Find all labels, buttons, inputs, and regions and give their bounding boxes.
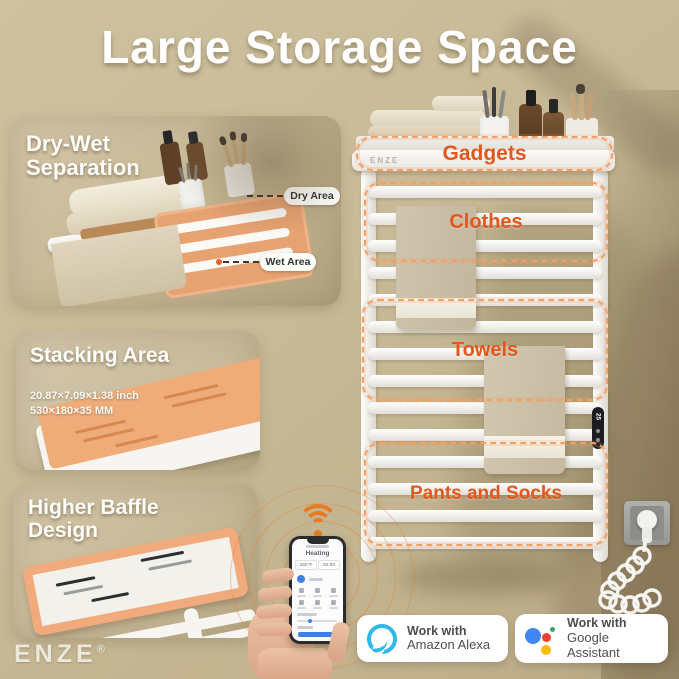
toothbrush [186,163,190,179]
app-slider-label-placeholder [297,613,317,616]
dry-area-label: Dry Area [284,187,340,205]
app-row-label-placeholder [297,626,313,629]
makeup-brush [569,92,578,120]
phone-notch [307,539,329,544]
panel2-title: Stacking Area [30,345,169,368]
badge-google-assistant: Work with Google Assistant [515,614,668,663]
zone-pants-socks: Pants and Socks [364,442,608,546]
zone-gadgets-label: Gadgets [442,142,526,166]
finger [256,622,292,636]
soap-bottle [186,141,209,181]
toothbrush-cup [177,178,205,211]
hand-wrist [258,648,332,679]
alexa-icon [367,624,397,654]
rack-bottom-shadow [400,560,560,594]
app-status-text: Heating [292,550,343,557]
wet-area-text: Wet Area [266,256,311,268]
wet-area-label: Wet Area [260,253,316,271]
toothbrush [498,90,506,118]
app-timer-value[interactable]: 02:00 [318,560,340,570]
wet-area-connector [223,261,259,263]
google-assistant-icon [525,621,559,657]
finger [256,604,293,619]
badge-alexa-name: Amazon Alexa [407,638,490,653]
badge-google-name: Google Assistant [567,631,658,661]
dry-area-connector [247,195,283,197]
rolled-towel [432,96,490,111]
makeup-brush [585,92,594,120]
control-button[interactable] [596,438,600,442]
panel2-dimensions: 20.87×7.09×1.38 inch 530×180×35 MM [30,389,139,419]
feature-panel-dry-wet: Dry Area Wet Area Dry-Wet Separation [11,116,341,306]
coiled-cable [586,538,672,614]
dimensions-inch: 20.87×7.09×1.38 inch [30,389,139,404]
rack-slat [167,207,287,235]
brush-tip [576,84,585,94]
toothbrush [492,87,496,117]
makeup-brush [222,143,234,167]
app-header-title-placeholder [306,545,329,548]
toothbrush [194,165,198,181]
zone-gadgets: Gadgets [356,136,613,171]
dimensions-mm: 530×180×35 MM [30,404,139,419]
feature-panel-stacking: Stacking Area 20.87×7.09×1.38 inch 530×1… [16,331,260,470]
zone-towels-label: Towels [452,339,518,362]
registered-mark: ® [97,644,105,656]
brand-logo: ENZE® [14,640,105,669]
makeup-brush [242,141,246,165]
panel1-title: Dry-Wet Separation [26,132,140,180]
panel3-title: Higher Baffle Design [28,497,159,542]
control-panel-display: 25 [595,411,602,423]
brush-holder [224,162,256,198]
makeup-brush [232,139,240,163]
app-slider-knob[interactable] [308,619,312,623]
zone-clothes: Clothes [364,182,608,262]
zone-clothes-label: Clothes [449,211,522,234]
app-temperature-value[interactable]: 150°F [295,560,317,570]
app-power-toggle[interactable] [297,575,305,583]
feature-panel-baffle: Higher Baffle Design [13,484,258,638]
app-slider[interactable] [297,620,337,622]
badge-google-prefix: Work with [567,616,658,630]
app-toggle-label-placeholder [309,578,323,581]
badge-alexa-prefix: Work with [407,624,490,638]
wifi-icon [297,504,339,540]
product-infographic: Large Storage Space Dry Area [0,0,679,679]
badge-amazon-alexa: Work with Amazon Alexa [357,615,508,662]
zone-towels: Towels [362,299,608,401]
page-title: Large Storage Space [0,20,679,74]
control-button[interactable] [596,429,600,433]
dry-area-text: Dry Area [290,190,333,202]
soap-pump [549,99,558,113]
soap-pump [526,90,536,106]
zone-pants-socks-label: Pants and Socks [410,483,562,505]
wet-area-marker-dot [216,259,222,265]
